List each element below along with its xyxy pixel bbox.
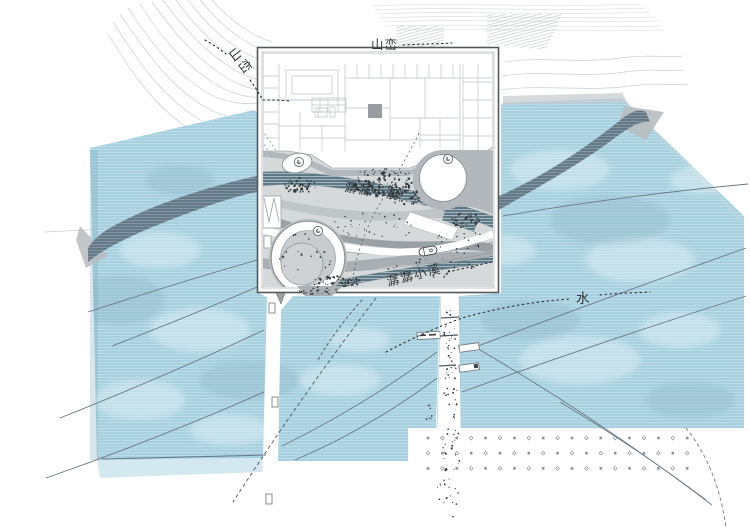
dashed-curve-southeast (686, 428, 726, 528)
water-label: 水 (576, 291, 590, 307)
mountain-label-top: 山峦 (371, 37, 398, 52)
pier-flow-dashes (439, 317, 459, 366)
panel-content: 潺潺小溪 潺潺小溪 (257, 53, 493, 297)
site-plan-drawing: 潺潺小溪 潺潺小溪 山峦 山峦 水 (0, 0, 750, 530)
mountain-leader-a (205, 40, 226, 54)
mountain-label-diagonal: 山峦 (225, 45, 256, 79)
spiral-icon-left (294, 157, 303, 166)
circular-lookout (269, 219, 347, 297)
plaza-dot-grid (426, 436, 689, 470)
site-plan-canvas: 潺潺小溪 潺潺小溪 山峦 山峦 水 (0, 0, 750, 530)
shore-contours-right (500, 56, 688, 90)
spiral-icon-lookout (313, 226, 322, 235)
building-core-dark (368, 104, 382, 118)
spiral-icon-right (443, 154, 452, 163)
hatch-patch-right (487, 14, 562, 50)
pier-left-details (266, 303, 278, 504)
viewpoint-circle-right (420, 155, 467, 202)
